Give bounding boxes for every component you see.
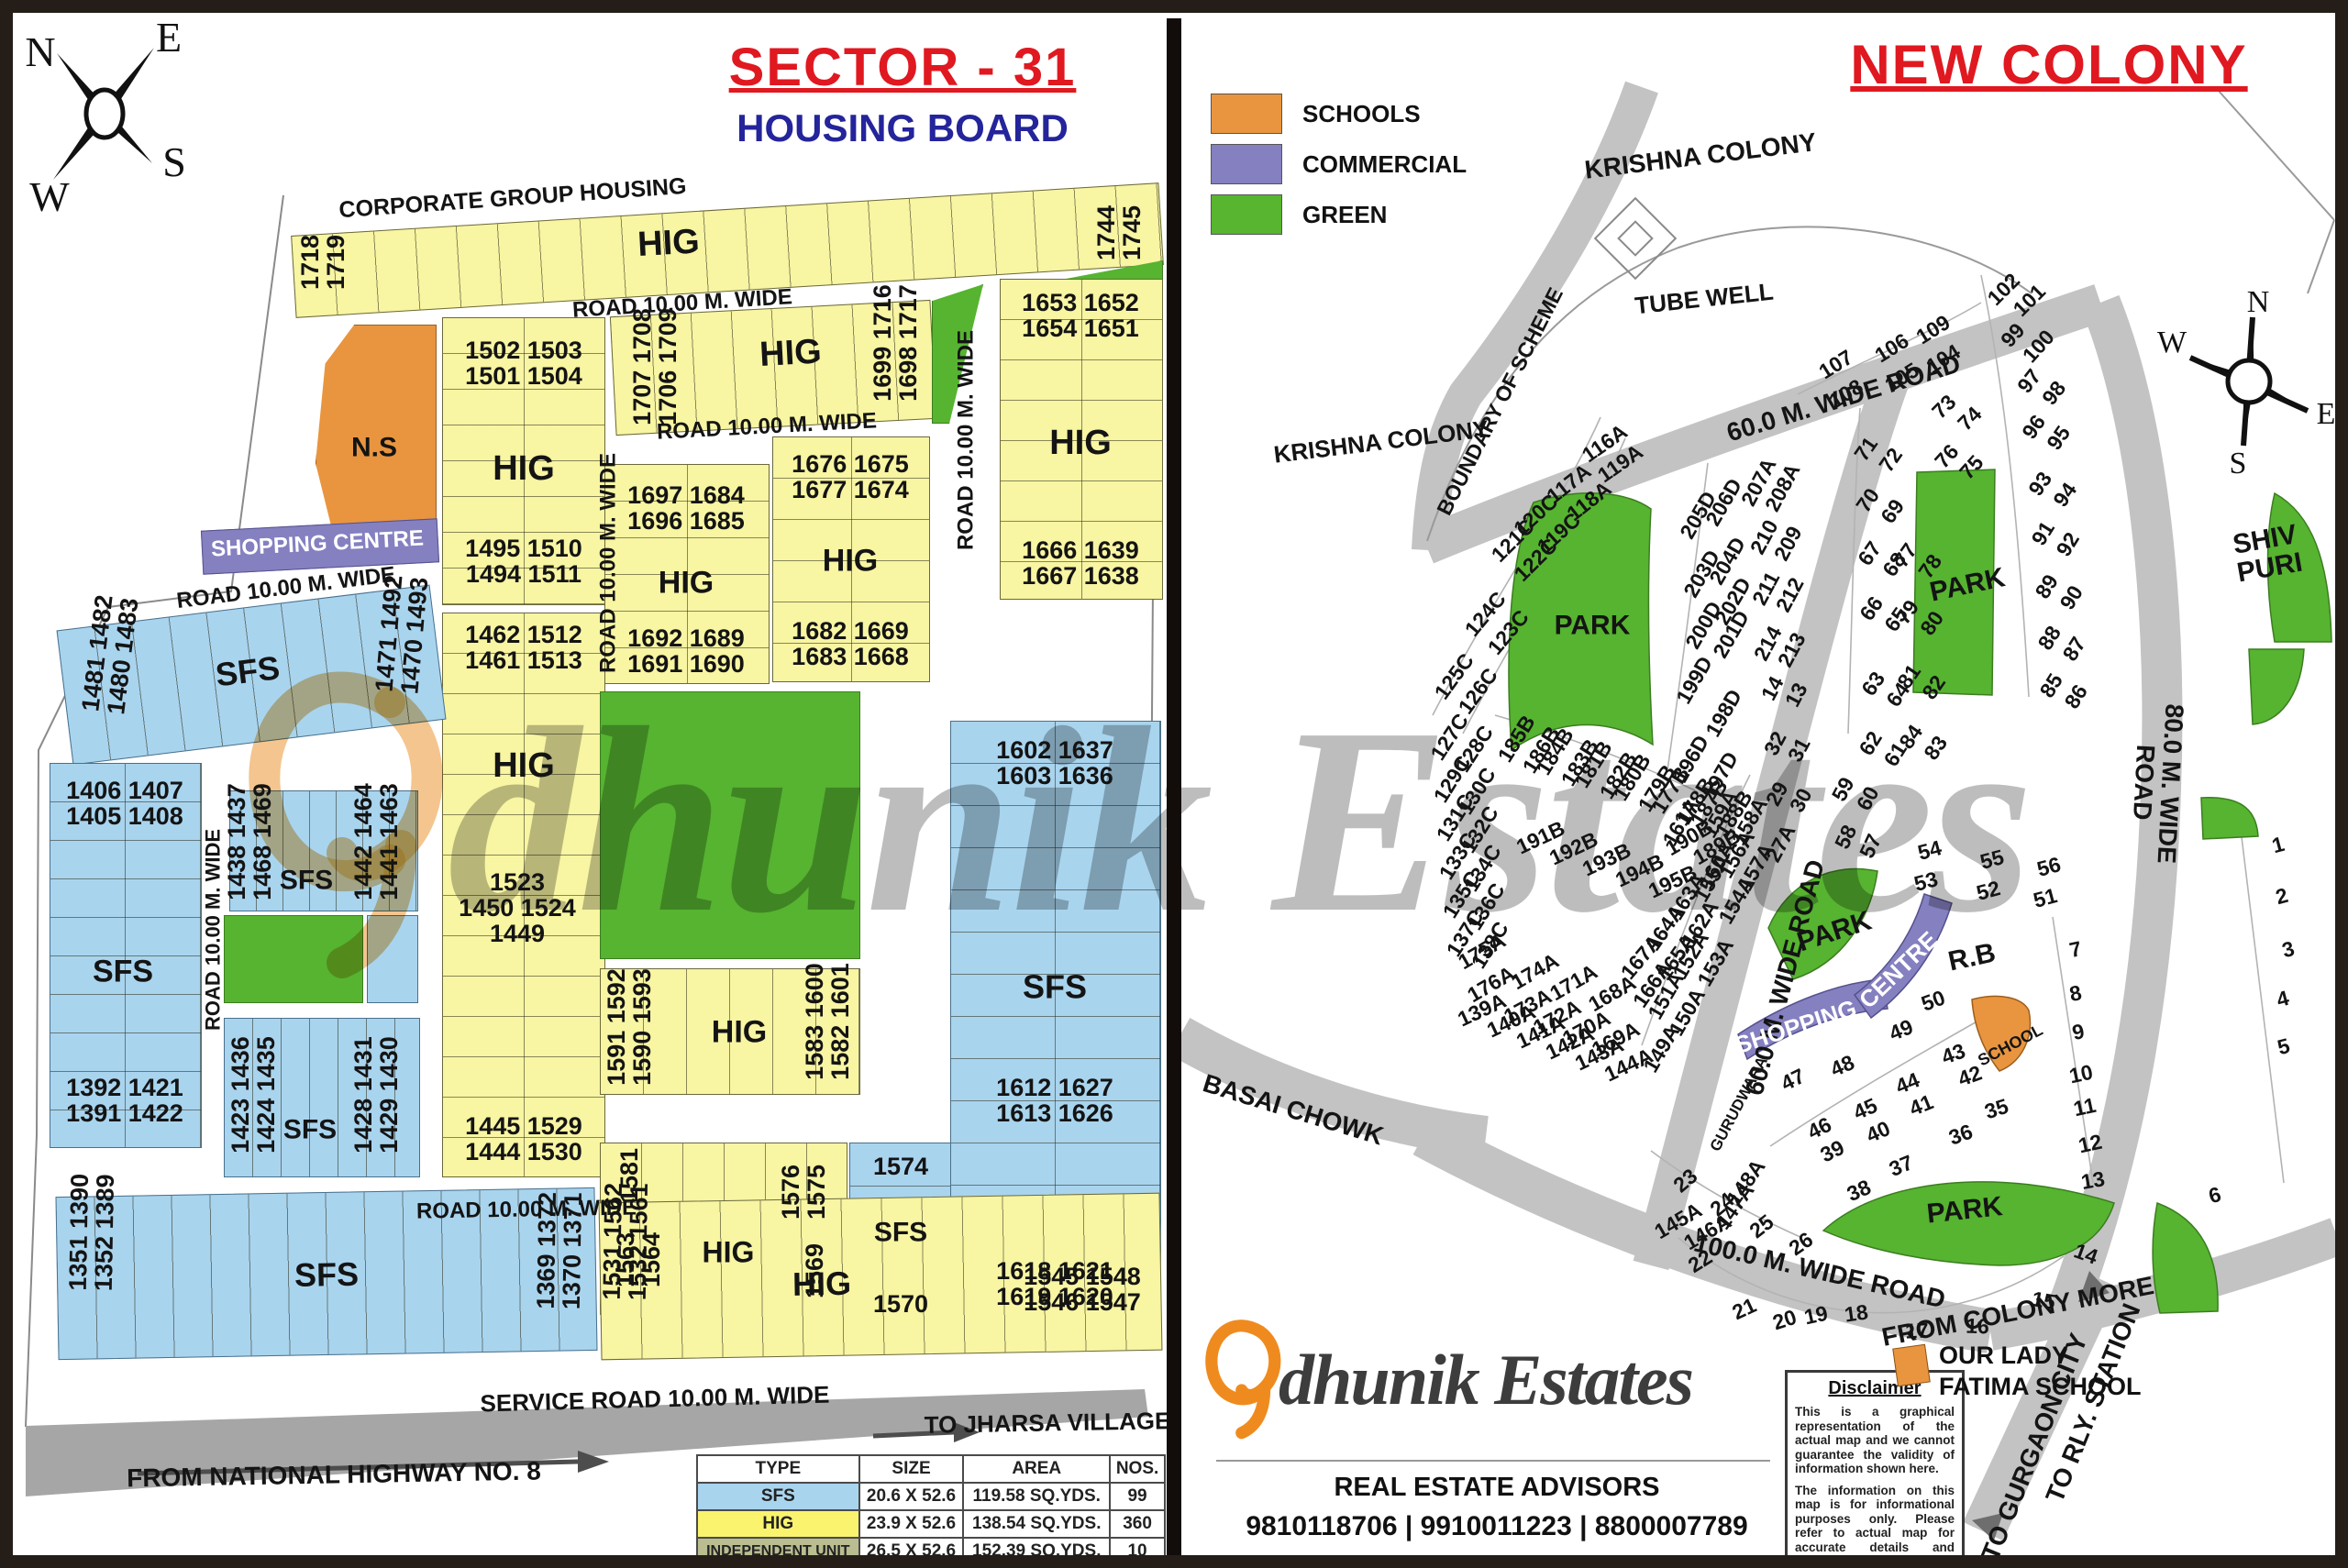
green-wedge-3 (2201, 798, 2258, 839)
table-row-independent: INDEPENDENT UNIT 26.5 X 52.6 152.39 SQ.Y… (697, 1538, 1165, 1555)
col-type: TYPE (697, 1455, 859, 1483)
map-label: 1495 1510 1494 1511 (465, 536, 582, 587)
map-label: 1682 1669 1683 1668 (792, 618, 909, 669)
map-label: 10 (2067, 1062, 2095, 1088)
legend-label: COMMERCIAL (1302, 150, 1467, 179)
map-label: 19 (1802, 1303, 1830, 1330)
cell-area: 119.58 SQ.YDS. (963, 1483, 1110, 1510)
legend-item-green: GREEN (1211, 194, 1467, 235)
school-swatch (1892, 1344, 1930, 1387)
map-label: 1445 1529 1444 1530 (465, 1113, 582, 1165)
map-label: SFS (294, 1257, 360, 1293)
map-label: 1692 1689 1691 1690 (627, 625, 745, 677)
map-label: HIG (493, 451, 555, 488)
map-label: 1545 1548 1546 1547 (1024, 1264, 1141, 1315)
cell-area: 138.54 SQ.YDS. (963, 1510, 1110, 1538)
cell-nos: 360 (1110, 1510, 1165, 1538)
legend-item-commercial: COMMERCIAL (1211, 144, 1467, 184)
our-lady-fatima-school: OUR LADY FATIMA SCHOOL (1895, 1341, 2141, 1403)
green-wedge-4 (2153, 1203, 2218, 1313)
map-frame: N E S W (0, 0, 2348, 1568)
compass-w: W (29, 173, 70, 220)
cell-nos: 99 (1110, 1483, 1165, 1510)
map-label: 1462 1512 1461 1513 (465, 622, 582, 673)
map-label: 1442 1464 1441 1463 (350, 783, 402, 900)
map-label: 1744 1745 (1093, 205, 1145, 260)
map-label: SFS (280, 866, 333, 894)
map-label: SFS (283, 1115, 337, 1143)
map-label: 1523 1450 1524 1449 (459, 869, 576, 946)
green-wedge-2 (2249, 649, 2304, 724)
brand-name: dhunik Estates (1279, 1339, 1692, 1421)
map-label: SFS (874, 1218, 927, 1246)
map-label: HIG (703, 1237, 755, 1267)
map-label: 1428 1431 1429 1430 (350, 1036, 402, 1154)
legend-label: SCHOOLS (1302, 100, 1421, 128)
map-label: SFS (93, 955, 153, 988)
col-area: AREA (963, 1455, 1110, 1483)
table-row-sfs: SFS 20.6 X 52.6 119.58 SQ.YDS. 99 (697, 1483, 1165, 1510)
cell-size: 26.5 X 52.6 (859, 1538, 964, 1555)
map-label: ROAD 10.00 M. WIDE (956, 330, 979, 550)
map-label: HIG (1049, 425, 1112, 462)
map-label: 1697 1684 1696 1685 (627, 482, 745, 534)
map-label: 1707 1708 1706 1709 (629, 308, 681, 425)
map-label: PARK (1555, 611, 1631, 639)
compass-e: E (2317, 397, 2335, 431)
map-label: 80.0 M. WIDE ROAD (2126, 693, 2188, 874)
map-label: 1471 1492 1470 1493 (371, 574, 432, 695)
legend-item-schools: SCHOOLS (1211, 94, 1467, 134)
map-label: 1392 1421 1391 1422 (66, 1075, 183, 1126)
col-size: SIZE (859, 1455, 964, 1483)
cell-type: INDEPENDENT UNIT (697, 1538, 859, 1555)
legend-swatch-schools (1211, 94, 1282, 134)
map-label: SHIV PURI (2229, 520, 2306, 588)
compass-n: N (25, 28, 55, 75)
panel-divider (1167, 18, 1181, 1555)
legend-label: GREEN (1302, 201, 1387, 229)
col-nos: NOS. (1110, 1455, 1165, 1483)
our-lady-label: OUR LADY FATIMA SCHOOL (1939, 1341, 2141, 1403)
corner-boundary (2218, 90, 2334, 293)
map-label: 18 (1844, 1301, 1870, 1326)
map-label: 1676 1675 1677 1674 (792, 451, 909, 502)
map-label: 16 (1966, 1316, 1989, 1339)
map-label: 1423 1436 1424 1435 (227, 1036, 279, 1154)
cell-size: 20.6 X 52.6 (859, 1483, 964, 1510)
compass-rose-left: N E S W (25, 14, 185, 220)
map-label: TO JHARSA VILLAGE (924, 1408, 1170, 1438)
map-label: HIG (637, 225, 701, 264)
map-label: 1699 1716 1698 1717 (869, 284, 921, 402)
brand-logo: dhunik Estates (1203, 1313, 1692, 1441)
map-label: 1666 1639 1667 1638 (1022, 537, 1139, 589)
cell-nos: 10 (1110, 1538, 1165, 1555)
compass-rose-right: N E S W (2157, 285, 2335, 480)
map-label: HIG (493, 748, 555, 785)
table-row-hig: HIG 23.9 X 52.6 138.54 SQ.YDS. 360 (697, 1510, 1165, 1538)
map-block (600, 691, 860, 959)
left-map-title: SECTOR - 31 (600, 37, 1205, 98)
cell-area: 152.39 SQ.YDS. (963, 1538, 1110, 1555)
map-label: 1583 1600 1582 1601 (802, 963, 853, 1080)
brand-tagline: REAL ESTATE ADVISORS (1222, 1473, 1772, 1503)
map-label: 12 (2077, 1132, 2104, 1158)
cell-size: 23.9 X 52.6 (859, 1510, 964, 1538)
map-label: 1591 1592 1590 1593 (604, 968, 655, 1086)
cell-type: HIG (697, 1510, 859, 1538)
map-label: 1576 1575 (778, 1165, 829, 1220)
table-header-row: TYPE SIZE AREA NOS. (697, 1455, 1165, 1483)
compass-s: S (2230, 447, 2247, 480)
compass-s: S (162, 138, 186, 185)
map-label: HIG (792, 1266, 852, 1302)
map-label: HIG (659, 567, 714, 599)
map-label: 11 (2072, 1095, 2099, 1121)
map-label: SFS (214, 650, 282, 692)
map-label: SFS (1023, 969, 1087, 1003)
map-block (367, 915, 418, 1003)
disclaimer-p2: The information on this map is for infor… (1795, 1484, 1955, 1555)
compass-e: E (156, 14, 182, 61)
compass-w: W (2157, 326, 2187, 359)
map-label: 1602 1637 1603 1636 (996, 737, 1113, 789)
cell-type: SFS (697, 1483, 859, 1510)
map-label: 13 (2079, 1168, 2106, 1194)
right-map-title: NEW COLONY (1755, 33, 2335, 96)
map-label: 1531 1562 1532 1561 (599, 1183, 652, 1301)
map-label: 1351 1390 1352 1389 (65, 1174, 118, 1292)
map-label: HIG (823, 545, 878, 577)
map-label: 17 (1905, 1320, 1930, 1342)
map-label: 1406 1407 1405 1408 (66, 778, 183, 829)
map-label: 1574 (873, 1154, 928, 1179)
map-label: 1502 1503 1501 1504 (465, 337, 582, 389)
legend-swatch-commercial (1211, 144, 1282, 184)
map-label: ROAD 10.00 M. WIDE (598, 453, 621, 673)
map-label: HIG (759, 335, 823, 374)
plot-summary-table: TYPE SIZE AREA NOS. SFS 20.6 X 52.6 119.… (696, 1454, 1166, 1555)
map-label: HIG (712, 1016, 767, 1048)
disclaimer-p1: This is a graphical representation of th… (1795, 1405, 1955, 1476)
map-label: 1570 (873, 1291, 928, 1317)
stage: N E S W (13, 13, 2335, 1555)
brand-rule (1216, 1460, 1770, 1462)
map-label: 15 (2030, 1288, 2056, 1314)
map-label: ROAD 10.00 M. WIDE (204, 829, 225, 1031)
map-label: 1438 1437 1468 1469 (224, 783, 275, 900)
map-block (224, 915, 363, 1003)
map-label: 1369 1372 1370 1371 (533, 1192, 586, 1310)
legend: SCHOOLS COMMERCIAL GREEN (1211, 94, 1467, 245)
map-label: 1718 1719 (297, 235, 349, 290)
map-label: 1653 1652 1654 1651 (1022, 290, 1139, 341)
compass-n: N (2247, 285, 2270, 319)
map-label: N.S (351, 433, 397, 461)
left-map-subtitle: HOUSING BOARD (600, 106, 1205, 150)
map-label: 1612 1627 1613 1626 (996, 1075, 1113, 1126)
brand-phones: 9810118706 | 9910011223 | 8800007789 (1213, 1511, 1781, 1542)
legend-swatch-green (1211, 194, 1282, 235)
